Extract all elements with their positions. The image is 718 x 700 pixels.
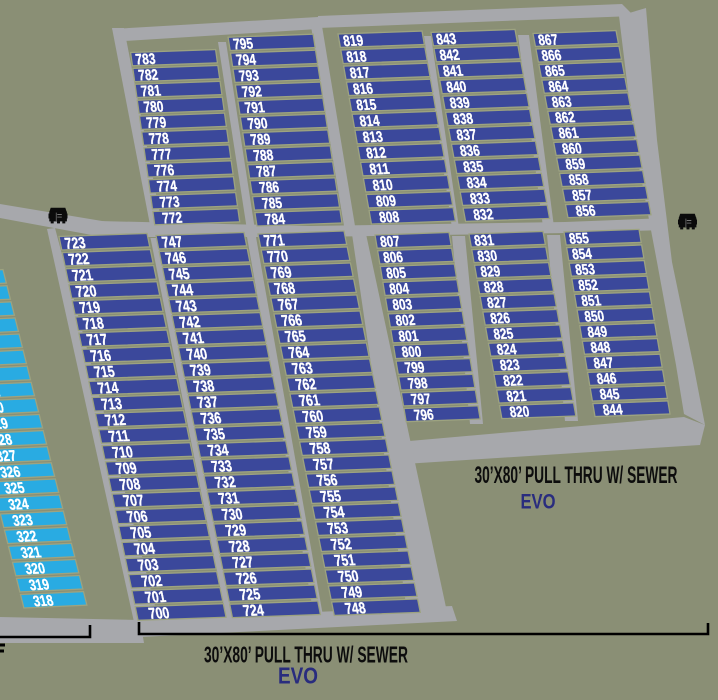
svg-text:794: 794: [235, 52, 258, 70]
svg-text:834: 834: [465, 174, 488, 192]
svg-text:842: 842: [438, 47, 461, 65]
svg-text:781: 781: [140, 83, 163, 101]
svg-text:755: 755: [319, 488, 343, 506]
svg-text:731: 731: [217, 490, 241, 508]
svg-text:812: 812: [365, 145, 388, 163]
svg-text:810: 810: [371, 177, 394, 195]
svg-text:773: 773: [159, 194, 181, 212]
svg-text:749: 749: [340, 584, 364, 602]
svg-text:796: 796: [413, 407, 435, 425]
svg-text:787: 787: [255, 163, 277, 181]
svg-text:761: 761: [298, 392, 322, 410]
svg-text:708: 708: [118, 476, 142, 494]
svg-text:712: 712: [104, 412, 128, 430]
svg-text:739: 739: [189, 362, 213, 380]
svg-text:753: 753: [326, 520, 350, 538]
svg-text:701: 701: [144, 589, 168, 607]
svg-text:703: 703: [136, 557, 160, 575]
svg-text:700: 700: [147, 605, 171, 623]
svg-text:760: 760: [301, 408, 325, 426]
svg-text:734: 734: [206, 442, 230, 460]
svg-text:762: 762: [294, 376, 318, 394]
svg-text:30’X80’ PULL THRU W/ SEWER: 30’X80’ PULL THRU W/ SEWER: [475, 462, 678, 489]
svg-text:718: 718: [82, 316, 106, 334]
svg-text:752: 752: [329, 536, 353, 554]
svg-text:776: 776: [153, 162, 175, 180]
svg-text:788: 788: [252, 147, 275, 165]
svg-text:838: 838: [452, 111, 475, 129]
svg-text:778: 778: [148, 130, 171, 148]
svg-text:777: 777: [151, 146, 173, 164]
svg-text:732: 732: [213, 474, 237, 492]
svg-text:725: 725: [238, 586, 262, 604]
svg-text:743: 743: [175, 298, 199, 316]
svg-text:770: 770: [266, 248, 290, 266]
svg-text:717: 717: [85, 332, 109, 350]
svg-text:754: 754: [322, 504, 346, 522]
svg-text:793: 793: [238, 68, 260, 86]
svg-text:757: 757: [312, 456, 336, 474]
svg-text:808: 808: [378, 209, 401, 227]
svg-text:722: 722: [67, 251, 91, 269]
svg-text:819: 819: [342, 33, 365, 51]
svg-text:715: 715: [93, 364, 117, 382]
svg-text:841: 841: [442, 63, 465, 81]
svg-text:820: 820: [508, 404, 531, 422]
svg-text:784: 784: [264, 211, 287, 229]
svg-text:706: 706: [125, 509, 149, 527]
svg-text:727: 727: [231, 554, 255, 572]
svg-text:EVO: EVO: [521, 490, 556, 514]
svg-text:780: 780: [143, 99, 165, 117]
svg-text:795: 795: [232, 36, 255, 54]
svg-text:772: 772: [161, 210, 183, 228]
svg-text:791: 791: [244, 99, 267, 117]
svg-text:720: 720: [74, 283, 98, 301]
svg-text:818: 818: [345, 49, 368, 67]
svg-text:774: 774: [156, 178, 179, 196]
svg-text:763: 763: [291, 360, 315, 378]
svg-text:747: 747: [160, 234, 184, 252]
svg-text:811: 811: [368, 161, 391, 179]
svg-text:785: 785: [261, 195, 284, 213]
svg-text:709: 709: [114, 460, 138, 478]
svg-text:816: 816: [352, 81, 375, 99]
svg-text:768: 768: [273, 280, 297, 298]
svg-text:740: 740: [185, 346, 209, 364]
svg-text:759: 759: [305, 424, 329, 442]
svg-text:710: 710: [111, 444, 135, 462]
svg-text:705: 705: [129, 525, 153, 543]
svg-text:767: 767: [276, 296, 300, 314]
svg-text:741: 741: [182, 330, 206, 348]
svg-text:765: 765: [284, 328, 308, 346]
svg-text:843: 843: [435, 31, 458, 49]
svg-text:771: 771: [262, 233, 286, 251]
svg-text:782: 782: [137, 67, 159, 85]
svg-text:815: 815: [355, 97, 378, 115]
svg-text:856: 856: [574, 203, 597, 221]
svg-text:704: 704: [133, 541, 157, 559]
svg-text:713: 713: [100, 396, 124, 414]
svg-text:733: 733: [210, 458, 234, 476]
svg-text:750: 750: [337, 568, 361, 586]
svg-text:746: 746: [164, 250, 188, 268]
svg-text:744: 744: [171, 282, 195, 300]
svg-text:789: 789: [249, 131, 271, 149]
svg-text:835: 835: [462, 159, 485, 177]
svg-text:783: 783: [134, 51, 156, 69]
svg-text:716: 716: [89, 348, 113, 366]
svg-text:711: 711: [107, 428, 131, 446]
svg-text:840: 840: [445, 79, 468, 97]
svg-text:745: 745: [167, 266, 191, 284]
svg-text:809: 809: [375, 193, 398, 211]
svg-text:766: 766: [280, 312, 304, 330]
svg-text:748: 748: [344, 600, 368, 618]
svg-text:707: 707: [122, 493, 146, 511]
svg-text:836: 836: [458, 143, 481, 161]
svg-text:813: 813: [362, 129, 385, 147]
svg-text:779: 779: [145, 114, 167, 132]
svg-text:726: 726: [235, 570, 259, 588]
svg-text:833: 833: [469, 190, 492, 208]
svg-text:837: 837: [455, 127, 478, 145]
svg-text:322: 322: [15, 528, 39, 546]
svg-text:769: 769: [269, 264, 293, 282]
svg-text:832: 832: [472, 206, 495, 224]
svg-text:EVO: EVO: [278, 663, 318, 689]
svg-text:320: 320: [23, 560, 47, 578]
svg-text:790: 790: [246, 115, 268, 133]
svg-text:758: 758: [308, 440, 332, 458]
svg-text:792: 792: [241, 83, 263, 101]
svg-text:839: 839: [448, 95, 471, 113]
svg-text:844: 844: [602, 402, 625, 420]
svg-text:724: 724: [242, 602, 266, 620]
svg-text:719: 719: [78, 299, 102, 317]
svg-text:764: 764: [287, 344, 311, 362]
svg-text:730: 730: [220, 506, 244, 524]
svg-text:714: 714: [96, 380, 120, 398]
svg-text:817: 817: [348, 65, 371, 83]
svg-text:737: 737: [196, 394, 220, 412]
svg-text:738: 738: [192, 378, 216, 396]
svg-text:756: 756: [315, 472, 339, 490]
svg-text:723: 723: [63, 235, 87, 253]
svg-text:786: 786: [258, 179, 280, 197]
svg-text:735: 735: [203, 426, 227, 444]
svg-text:702: 702: [140, 573, 164, 591]
svg-text:751: 751: [333, 552, 357, 570]
svg-text:728: 728: [228, 538, 252, 556]
svg-text:729: 729: [224, 522, 248, 540]
svg-text:721: 721: [71, 267, 95, 285]
svg-text:736: 736: [199, 410, 223, 428]
svg-text:814: 814: [358, 113, 381, 131]
svg-text:742: 742: [178, 314, 202, 332]
